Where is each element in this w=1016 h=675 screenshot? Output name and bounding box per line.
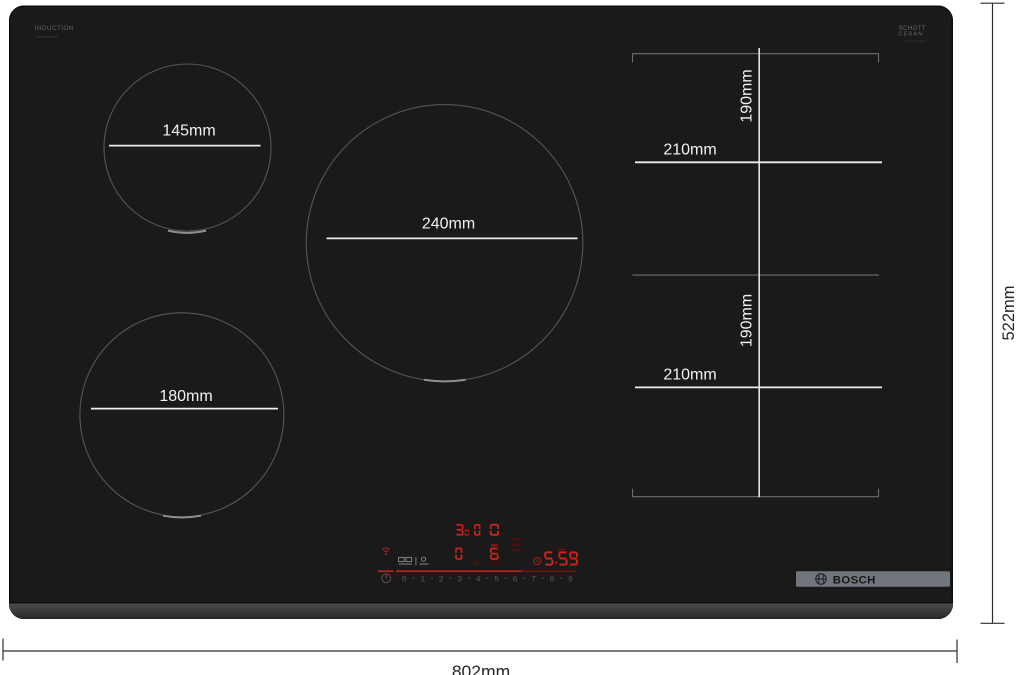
svg-text:BOSCH: BOSCH	[833, 574, 876, 586]
svg-text:4: 4	[476, 575, 481, 585]
svg-text:6: 6	[512, 575, 517, 585]
svg-text:180mm: 180mm	[159, 388, 212, 405]
svg-text:1: 1	[420, 575, 425, 585]
svg-text:802mm: 802mm	[452, 662, 510, 675]
svg-text:145mm: 145mm	[162, 122, 215, 139]
svg-text:210mm: 210mm	[663, 141, 716, 158]
svg-text:CERAN: CERAN	[899, 31, 924, 37]
svg-text:240mm: 240mm	[422, 216, 475, 233]
svg-text:7: 7	[531, 575, 536, 585]
svg-text:8: 8	[549, 575, 554, 585]
svg-text:PowerInduction: PowerInduction	[35, 35, 58, 39]
svg-text:522mm: 522mm	[1000, 285, 1016, 340]
svg-text:190mm: 190mm	[739, 69, 756, 122]
svg-text:0: 0	[402, 575, 407, 585]
svg-text:INDUCTION: INDUCTION	[35, 25, 74, 32]
svg-text:190mm: 190mm	[739, 294, 756, 347]
svg-text:MADE IN GERMANY: MADE IN GERMANY	[903, 41, 927, 44]
svg-text:3: 3	[457, 575, 462, 585]
svg-text:2: 2	[439, 575, 444, 585]
svg-text:5: 5	[494, 575, 499, 585]
svg-text:9: 9	[568, 575, 573, 585]
svg-text:210mm: 210mm	[663, 367, 716, 384]
